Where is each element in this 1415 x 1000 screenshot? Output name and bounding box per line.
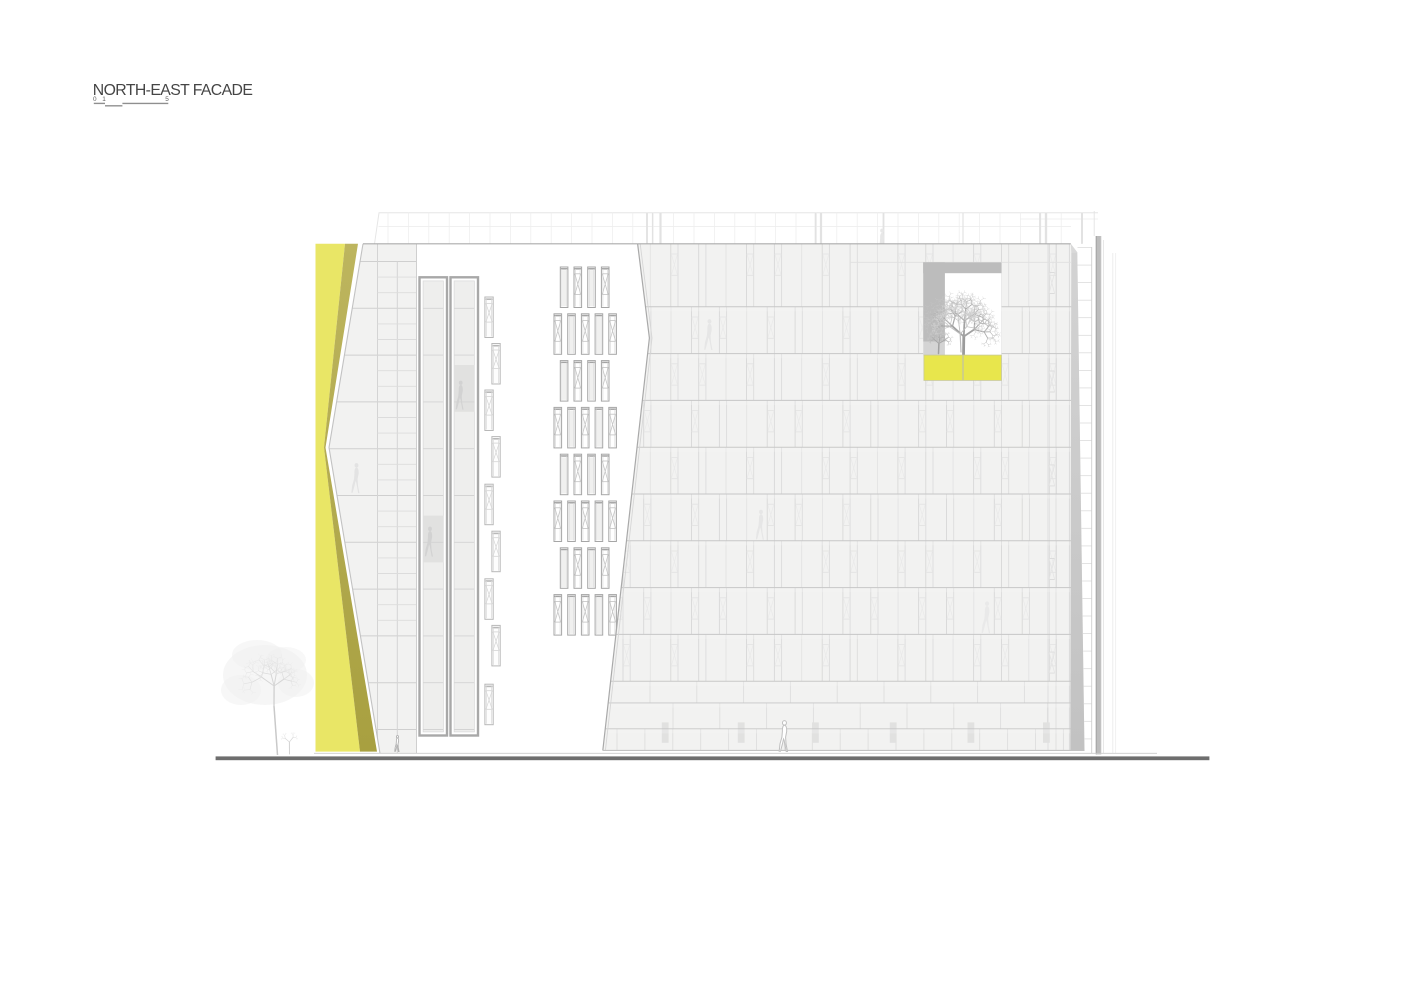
svg-text:0: 0 — [93, 96, 97, 103]
svg-text:5: 5 — [165, 96, 169, 103]
svg-text:1: 1 — [102, 96, 106, 103]
svg-text:NORTH-EAST FACADE: NORTH-EAST FACADE — [93, 82, 253, 99]
